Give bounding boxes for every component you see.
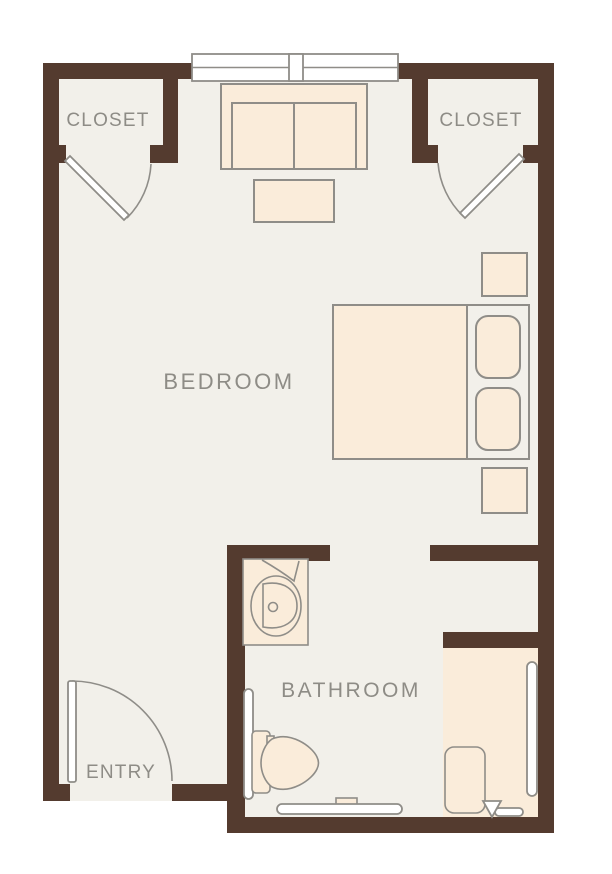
window-mullion [289, 54, 303, 81]
wall-right [538, 63, 554, 833]
closet-right-label: CLOSET [439, 110, 522, 131]
sink-vanity [243, 559, 308, 645]
bathroom-label: BATHROOM [281, 679, 421, 702]
wall-bottom-entry-left [43, 784, 70, 801]
wall-left [43, 63, 59, 801]
door-leaf [68, 681, 76, 782]
wall-top-left [43, 63, 193, 79]
shower-grab-bar [527, 662, 537, 796]
nightstand-top [482, 253, 527, 296]
closet-left-label: CLOSET [66, 110, 149, 131]
coffee-table [254, 180, 334, 222]
wall-closet-left-jamb-left [43, 145, 66, 163]
vanity-counter [243, 559, 308, 645]
nightstand-bottom [482, 468, 527, 513]
wall-closet-left-jamb-right [150, 145, 178, 163]
wall-bathroom-bottom [227, 817, 554, 833]
grab-bar [277, 804, 402, 814]
floor-plan-page: CLOSET CLOSET BEDROOM BATHROOM ENTRY [0, 0, 612, 874]
wall-closet-right-jamb-right [523, 145, 554, 163]
wall-closet-left-partition [163, 79, 178, 149]
shower-bench [445, 747, 485, 813]
bedroom-label: BEDROOM [163, 369, 294, 394]
floor-plan: CLOSET CLOSET BEDROOM BATHROOM ENTRY [0, 0, 612, 874]
wall-bathroom-top-right [430, 545, 538, 561]
entry-label: ENTRY [86, 762, 156, 783]
pillow [476, 388, 520, 450]
double-window-icon [192, 54, 398, 81]
shower-foot-bar [495, 808, 523, 816]
wall-closet-right-partition [412, 79, 428, 149]
mattress [333, 305, 467, 459]
wall-shower-top [443, 632, 538, 648]
wall-closet-right-jamb-left [412, 145, 438, 163]
sofa [221, 84, 367, 169]
pillow [476, 316, 520, 378]
wall-top-right [397, 63, 554, 79]
